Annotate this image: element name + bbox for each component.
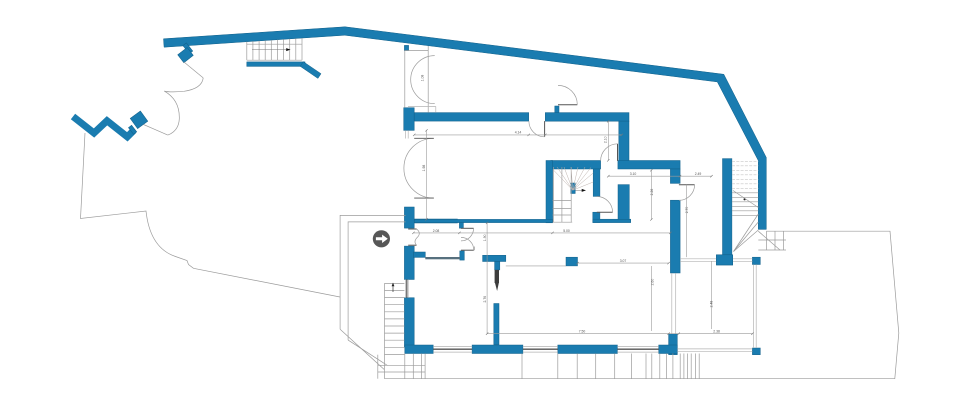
svg-text:1.08: 1.08 [421,75,425,82]
svg-text:4.14: 4.14 [515,131,522,135]
svg-text:2.49: 2.49 [695,172,702,176]
svg-text:3.10: 3.10 [630,172,637,176]
svg-text:3.07: 3.07 [620,259,627,263]
svg-text:1.98: 1.98 [422,165,426,172]
svg-text:5.00: 5.00 [563,229,570,233]
svg-text:2.38: 2.38 [713,330,720,334]
svg-text:1.90: 1.90 [483,234,487,241]
svg-text:7.50: 7.50 [579,330,586,334]
svg-text:2.26: 2.26 [650,189,654,196]
svg-text:2.60: 2.60 [651,279,655,286]
svg-text:2.48: 2.48 [710,301,714,308]
svg-text:2.10: 2.10 [604,136,608,143]
svg-text:2.76: 2.76 [483,296,487,303]
svg-text:2.08: 2.08 [433,229,440,233]
svg-text:2.70: 2.70 [685,207,689,214]
